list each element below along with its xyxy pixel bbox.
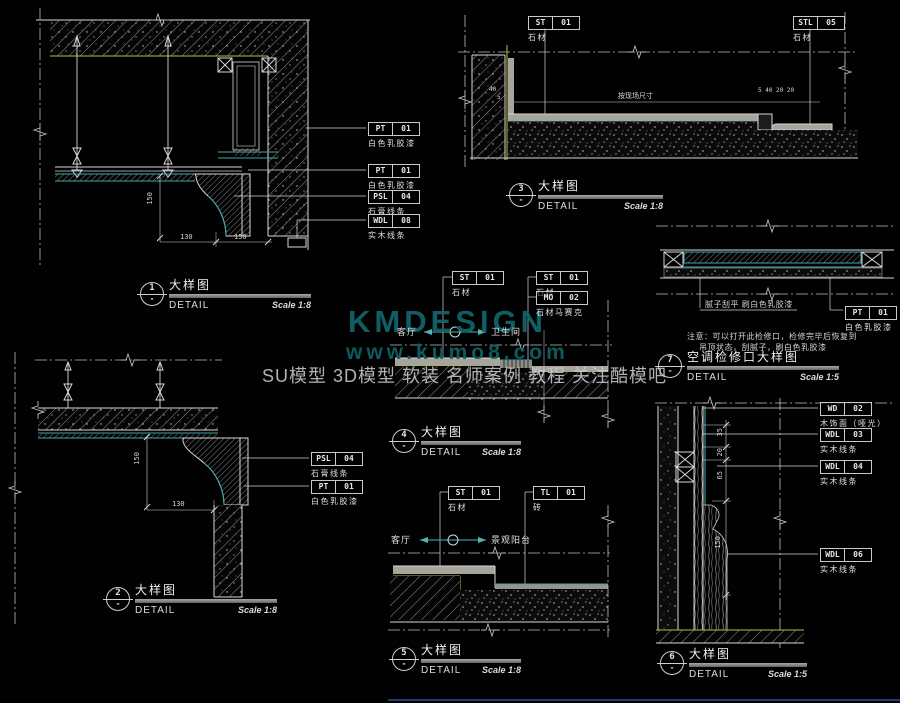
tag-box: ST01 <box>528 16 580 30</box>
detail-number: 4 <box>401 430 406 441</box>
hanger-rod-icon <box>72 36 82 177</box>
tag-desc: 石材 <box>793 32 845 43</box>
dimension-text: 5 <box>497 94 501 101</box>
detail-scale: Scale 1:8 <box>624 201 663 212</box>
break-symbol <box>488 547 506 559</box>
tag-desc: 实木线条 <box>820 476 872 487</box>
detail-subtitle: DETAIL <box>538 201 578 212</box>
break-symbol <box>9 481 21 499</box>
tag-code: STL <box>794 17 818 29</box>
detail-ref: - <box>402 659 407 669</box>
material-tag: ST01石材 <box>448 486 500 513</box>
break-symbol <box>703 397 721 409</box>
tag-code: WDL <box>821 429 845 441</box>
detail-number-bubble: 5- <box>392 647 416 671</box>
detail-ref: - <box>519 195 524 205</box>
x-block-icon <box>676 452 694 467</box>
tag-num: 02 <box>845 403 871 415</box>
tag-box: ST01 <box>536 271 588 285</box>
title-underline <box>135 599 277 603</box>
x-block-icon <box>676 467 694 482</box>
x-block-icon <box>218 58 232 72</box>
dimension-text: 20 <box>716 448 724 456</box>
detail-title-1: 1- 大样图DETAILScale 1:8 <box>140 279 311 311</box>
material-tag: PT01白色乳胶漆 <box>845 306 897 333</box>
tag-code: ST <box>529 17 553 29</box>
tag-num: 01 <box>393 123 419 135</box>
material-tag: ST01石材 <box>528 16 580 43</box>
tag-num: 01 <box>561 272 587 284</box>
dimension-text: 130 <box>180 233 193 241</box>
title-underline <box>421 441 521 445</box>
tag-num: 04 <box>845 461 871 473</box>
caution-note-line1: 注意：可以打开此检修口，检修完毕后恢复到 <box>687 331 857 342</box>
detail-title-text: 大样图 <box>169 279 311 292</box>
detail-ref: - <box>150 294 155 304</box>
tag-num: 01 <box>336 481 362 493</box>
material-tag: PT01白色乳胶漆 <box>368 164 420 191</box>
tag-desc: 白色乳胶漆 <box>845 322 897 333</box>
tag-num: 04 <box>336 453 362 465</box>
tag-desc: 砖 <box>533 502 585 513</box>
tag-box: PSL04 <box>368 190 420 204</box>
detail-title-text: 大样图 <box>689 648 807 661</box>
title-underline <box>687 366 839 370</box>
break-symbol <box>774 511 786 529</box>
break-symbol <box>628 46 646 58</box>
detail-title-6: 6- 大样图DETAILScale 1:5 <box>660 648 807 680</box>
tag-num: 03 <box>845 429 871 441</box>
tag-box: WD02 <box>820 402 872 416</box>
x-block-icon <box>664 252 683 267</box>
tag-box: PT01 <box>311 480 363 494</box>
room-label: 客厅 <box>391 533 411 546</box>
tag-code: WD <box>821 403 845 415</box>
tag-box: ST01 <box>448 486 500 500</box>
tag-code: ST <box>449 487 473 499</box>
title-underline <box>421 659 521 663</box>
break-symbol <box>839 61 851 79</box>
tag-code: MO <box>537 292 561 304</box>
detail-number-bubble: 6- <box>660 651 684 675</box>
tag-num: 01 <box>558 487 584 499</box>
detail-number: 2 <box>115 588 120 599</box>
tag-num: 01 <box>473 487 499 499</box>
detail-scale: Scale 1:8 <box>272 300 311 311</box>
detail-subtitle: DETAIL <box>169 300 209 311</box>
tag-desc: 白色乳胶漆 <box>368 138 420 149</box>
tag-code: WDL <box>821 461 845 473</box>
material-tag: WDL04实木线条 <box>820 460 872 487</box>
dimension-text: 5 40 20 20 <box>758 87 794 94</box>
dimension-text: 35 <box>716 428 724 436</box>
break-symbol <box>602 409 614 427</box>
dimension-text: 150 <box>714 536 722 549</box>
tag-desc: 石材马赛克 <box>536 307 588 318</box>
tag-num: 05 <box>818 17 844 29</box>
material-tag: WD02木饰面（哑光） <box>820 402 887 429</box>
detail-subtitle: DETAIL <box>135 605 175 616</box>
detail-title-text: 大样图 <box>421 426 521 439</box>
detail-number-bubble: 3- <box>509 183 533 207</box>
dimension-text: 按现场尺寸 <box>618 91 653 101</box>
tag-code: PT <box>846 307 870 319</box>
tag-code: PSL <box>312 453 336 465</box>
detail-title-text: 空调检修口大样图 <box>687 351 839 364</box>
detail-subtitle: DETAIL <box>689 669 729 680</box>
room-span-arrow-icon <box>420 535 486 545</box>
title-underline <box>689 663 807 667</box>
break-symbol <box>538 405 550 423</box>
detail-ref: - <box>402 441 407 451</box>
hanger-rod-icon <box>156 362 164 408</box>
material-tag: STL05石材 <box>793 16 845 43</box>
detail-number: 1 <box>149 283 154 294</box>
detail-number-bubble: 2- <box>106 587 130 611</box>
material-tag: PT01白色乳胶漆 <box>311 480 363 507</box>
tag-box: ST01 <box>452 271 504 285</box>
tag-desc: 石材 <box>452 287 504 298</box>
tag-desc: 白色乳胶漆 <box>311 496 363 507</box>
break-symbol <box>602 511 614 529</box>
room-label: 客厅 <box>397 325 417 338</box>
tag-desc: 石材 <box>448 502 500 513</box>
watermark-tagline: SU模型 3D模型 软装 名师案例 教程 关注酷模吧 <box>262 362 667 388</box>
detail-number-bubble: 7- <box>658 354 682 378</box>
material-tag: TL01砖 <box>533 486 585 513</box>
dimension-text: 130 <box>172 500 185 508</box>
detail-5-drawing <box>388 492 614 640</box>
leader-note: 腻子刮平 刷白色乳胶漆 <box>705 299 793 310</box>
tag-num: 04 <box>393 191 419 203</box>
detail-ref: - <box>670 663 675 673</box>
detail-scale: Scale 1:8 <box>238 605 277 616</box>
tag-num: 01 <box>870 307 896 319</box>
tag-desc: 实木线条 <box>368 230 420 241</box>
tag-box: WDL06 <box>820 548 872 562</box>
detail-ref: - <box>116 599 121 609</box>
detail-title-text: 大样图 <box>538 180 663 193</box>
detail-title-3: 3- 大样图DETAILScale 1:8 <box>509 180 663 212</box>
tag-num: 02 <box>561 292 587 304</box>
hanger-rod-icon <box>163 36 173 177</box>
room-label: 卫生间 <box>491 325 521 338</box>
break-symbol <box>761 220 779 232</box>
break-symbol <box>459 91 471 109</box>
detail-number: 5 <box>401 648 406 659</box>
tag-code: ST <box>537 272 561 284</box>
detail-title-text: 大样图 <box>421 644 521 657</box>
material-tag: PSL04石膏线条 <box>368 190 420 217</box>
dimension-text: 150 <box>234 233 247 241</box>
dimension-text: 150 <box>133 452 141 465</box>
detail-7-drawing <box>656 220 896 310</box>
material-tag: ST01石材 <box>452 271 504 298</box>
cad-sheet: KMDESIGN www.kumo8.com SU模型 3D模型 软装 名师案例… <box>0 0 900 703</box>
detail-title-5: 5- 大样图DETAILScale 1:8 <box>392 644 521 676</box>
tag-box: STL05 <box>793 16 845 30</box>
tag-code: WDL <box>369 215 393 227</box>
detail-number-bubble: 1- <box>140 282 164 306</box>
hanger-rod-icon <box>64 362 72 408</box>
x-block-icon <box>862 252 882 267</box>
tag-box: TL01 <box>533 486 585 500</box>
room-label: 景观阳台 <box>491 533 531 546</box>
tag-box: PT01 <box>368 122 420 136</box>
tag-box: WDL08 <box>368 214 420 228</box>
dimension-text: 65 <box>716 471 724 479</box>
break-symbol <box>121 354 139 366</box>
detail-1-drawing <box>34 8 366 266</box>
tag-code: WDL <box>821 549 845 561</box>
detail-number: 3 <box>518 184 523 195</box>
tag-code: PSL <box>369 191 393 203</box>
tag-code: ST <box>453 272 477 284</box>
tag-box: WDL04 <box>820 460 872 474</box>
detail-title-7: 7- 空调检修口大样图DETAILScale 1:5 <box>658 351 839 383</box>
detail-scale: Scale 1:5 <box>800 372 839 383</box>
dimension-text: 150 <box>146 192 154 205</box>
title-underline <box>169 294 311 298</box>
tag-desc: 石材 <box>528 32 580 43</box>
tag-code: TL <box>534 487 558 499</box>
detail-scale: Scale 1:8 <box>482 665 521 676</box>
material-tag: MO02石材马赛克 <box>536 291 588 318</box>
tag-desc: 实木线条 <box>820 564 872 575</box>
tag-box: PT01 <box>368 164 420 178</box>
title-underline <box>538 195 663 199</box>
tag-box: PSL04 <box>311 452 363 466</box>
tag-num: 01 <box>477 272 503 284</box>
detail-scale: Scale 1:5 <box>768 669 807 680</box>
break-symbol <box>34 123 46 141</box>
tag-num: 01 <box>393 165 419 177</box>
detail-number: 6 <box>669 652 674 663</box>
detail-title-text: 大样图 <box>135 584 277 597</box>
tag-box: PT01 <box>845 306 897 320</box>
tag-num: 06 <box>845 549 871 561</box>
dimension-text: 40 <box>489 86 496 93</box>
tag-box: WDL03 <box>820 428 872 442</box>
break-symbol <box>481 624 499 636</box>
tag-num: 08 <box>393 215 419 227</box>
tag-box: MO02 <box>536 291 588 305</box>
detail-subtitle: DETAIL <box>421 665 461 676</box>
material-tag: WDL03实木线条 <box>820 428 872 455</box>
detail-number-bubble: 4- <box>392 429 416 453</box>
tag-code: PT <box>369 165 393 177</box>
tag-num: 01 <box>553 17 579 29</box>
detail-title-2: 2- 大样图DETAILScale 1:8 <box>106 584 277 616</box>
detail-subtitle: DETAIL <box>687 372 727 383</box>
material-tag: WDL08实木线条 <box>368 214 420 241</box>
material-tag: PT01白色乳胶漆 <box>368 122 420 149</box>
detail-ref: - <box>668 366 673 376</box>
detail-subtitle: DETAIL <box>421 447 461 458</box>
detail-title-4: 4- 大样图DETAILScale 1:8 <box>392 426 521 458</box>
material-tag: WDL06实木线条 <box>820 548 872 575</box>
tag-code: PT <box>312 481 336 493</box>
tag-code: PT <box>369 123 393 135</box>
detail-number: 7 <box>667 355 672 366</box>
detail-scale: Scale 1:8 <box>482 447 521 458</box>
tag-desc: 实木线条 <box>820 444 872 455</box>
material-tag: PSL04石膏线条 <box>311 452 363 479</box>
tag-desc: 石膏线条 <box>311 468 363 479</box>
